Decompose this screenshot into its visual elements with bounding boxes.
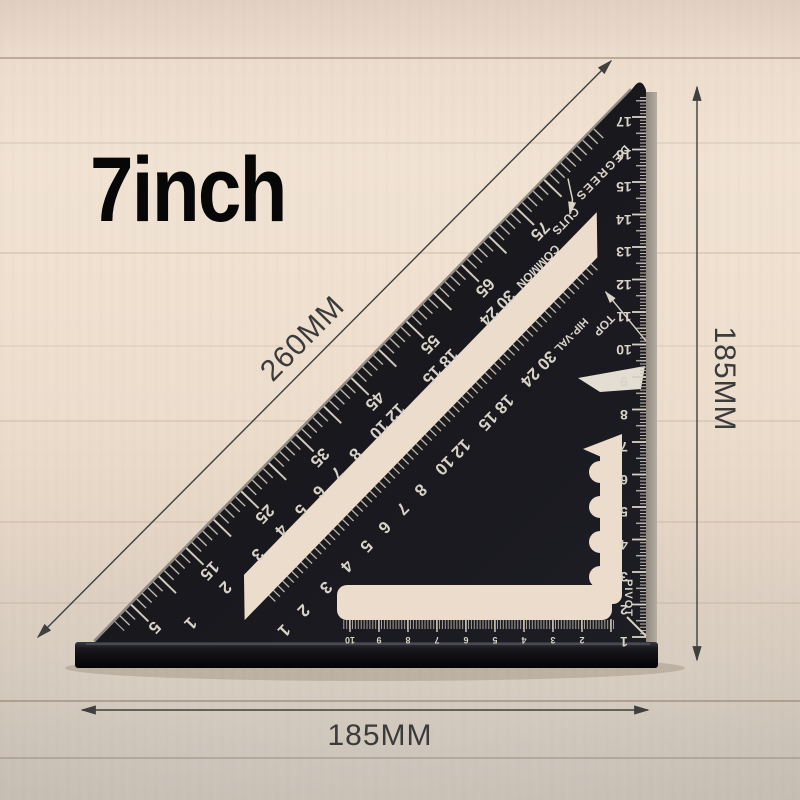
notch-bump <box>589 461 611 483</box>
scale-label: 7 <box>434 635 439 645</box>
product-title: 7inch <box>90 138 286 243</box>
right-cm-ticks <box>632 108 646 638</box>
bottom-cm-ticks <box>344 619 612 632</box>
scale-label: 17 <box>616 114 632 130</box>
scale-label: 4 <box>620 537 628 553</box>
scale-label: 9 <box>376 635 381 645</box>
scale-label: 10 <box>616 342 632 358</box>
scale-label: 1 <box>620 634 628 650</box>
notch-bump <box>589 496 611 518</box>
scale-label: 8 <box>620 407 628 423</box>
scale-label: 9 <box>620 374 628 390</box>
notch-bump <box>589 566 611 588</box>
scale-label: 5 <box>492 635 497 645</box>
bottom-slot-cutout <box>337 585 612 620</box>
notch-bump <box>589 531 611 553</box>
scale-label: 4 <box>521 635 526 645</box>
scale-label: 13 <box>616 244 632 260</box>
scale-label: 14 <box>616 212 632 228</box>
scale-label: 7 <box>620 439 628 455</box>
right-edge-bevel <box>646 92 657 642</box>
scale-label: 12 <box>616 277 632 293</box>
scale-label: 16 <box>616 147 632 163</box>
scale-label: 10 <box>345 635 355 645</box>
scale-label: 6 <box>620 472 628 488</box>
scale-label: 2 <box>579 635 584 645</box>
scale-label: 15 <box>616 179 632 195</box>
scale-label: 8 <box>405 635 410 645</box>
speed-square-photo: 5 15 25 35 45 55 65 75 DEGREES 1 2 3 4 5… <box>0 0 800 800</box>
fence-bar <box>75 642 658 668</box>
dimension-label-right: 185MM <box>707 294 741 464</box>
scale-label: 6 <box>463 635 468 645</box>
pivot-word: PIVOT <box>622 579 634 617</box>
dimension-label-bottom: 185MM <box>295 719 465 753</box>
scale-label: 5 <box>620 504 628 520</box>
scale-label: 3 <box>550 635 555 645</box>
scale-label: 11 <box>616 309 631 325</box>
